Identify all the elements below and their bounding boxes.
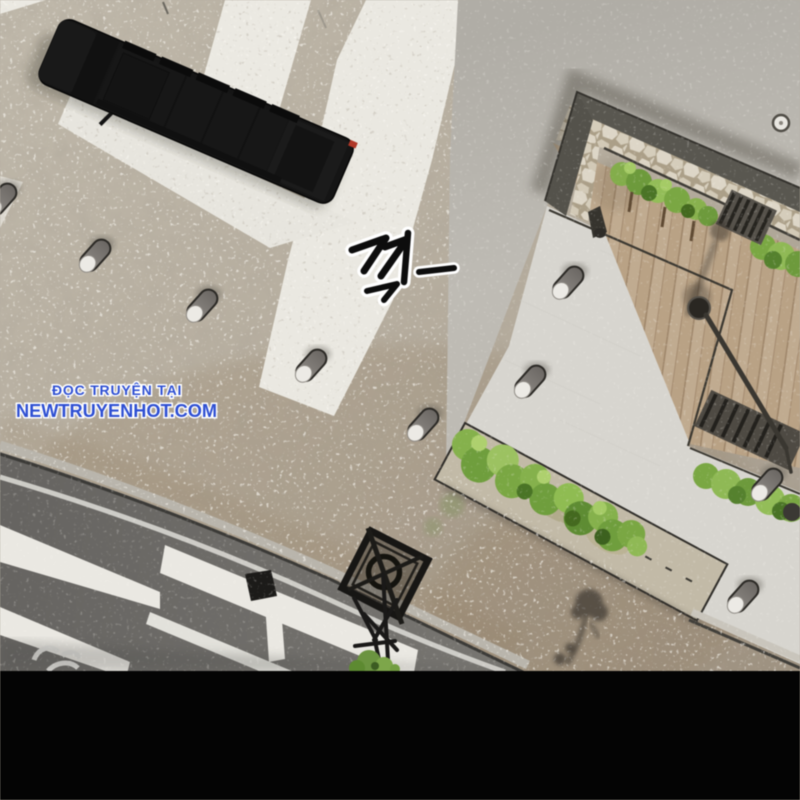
svg-text:ĐỌC TRUYỆN TẠI: ĐỌC TRUYỆN TẠI xyxy=(52,381,182,398)
svg-text:NEWTRUYENHOT.COM: NEWTRUYENHOT.COM xyxy=(16,401,217,421)
